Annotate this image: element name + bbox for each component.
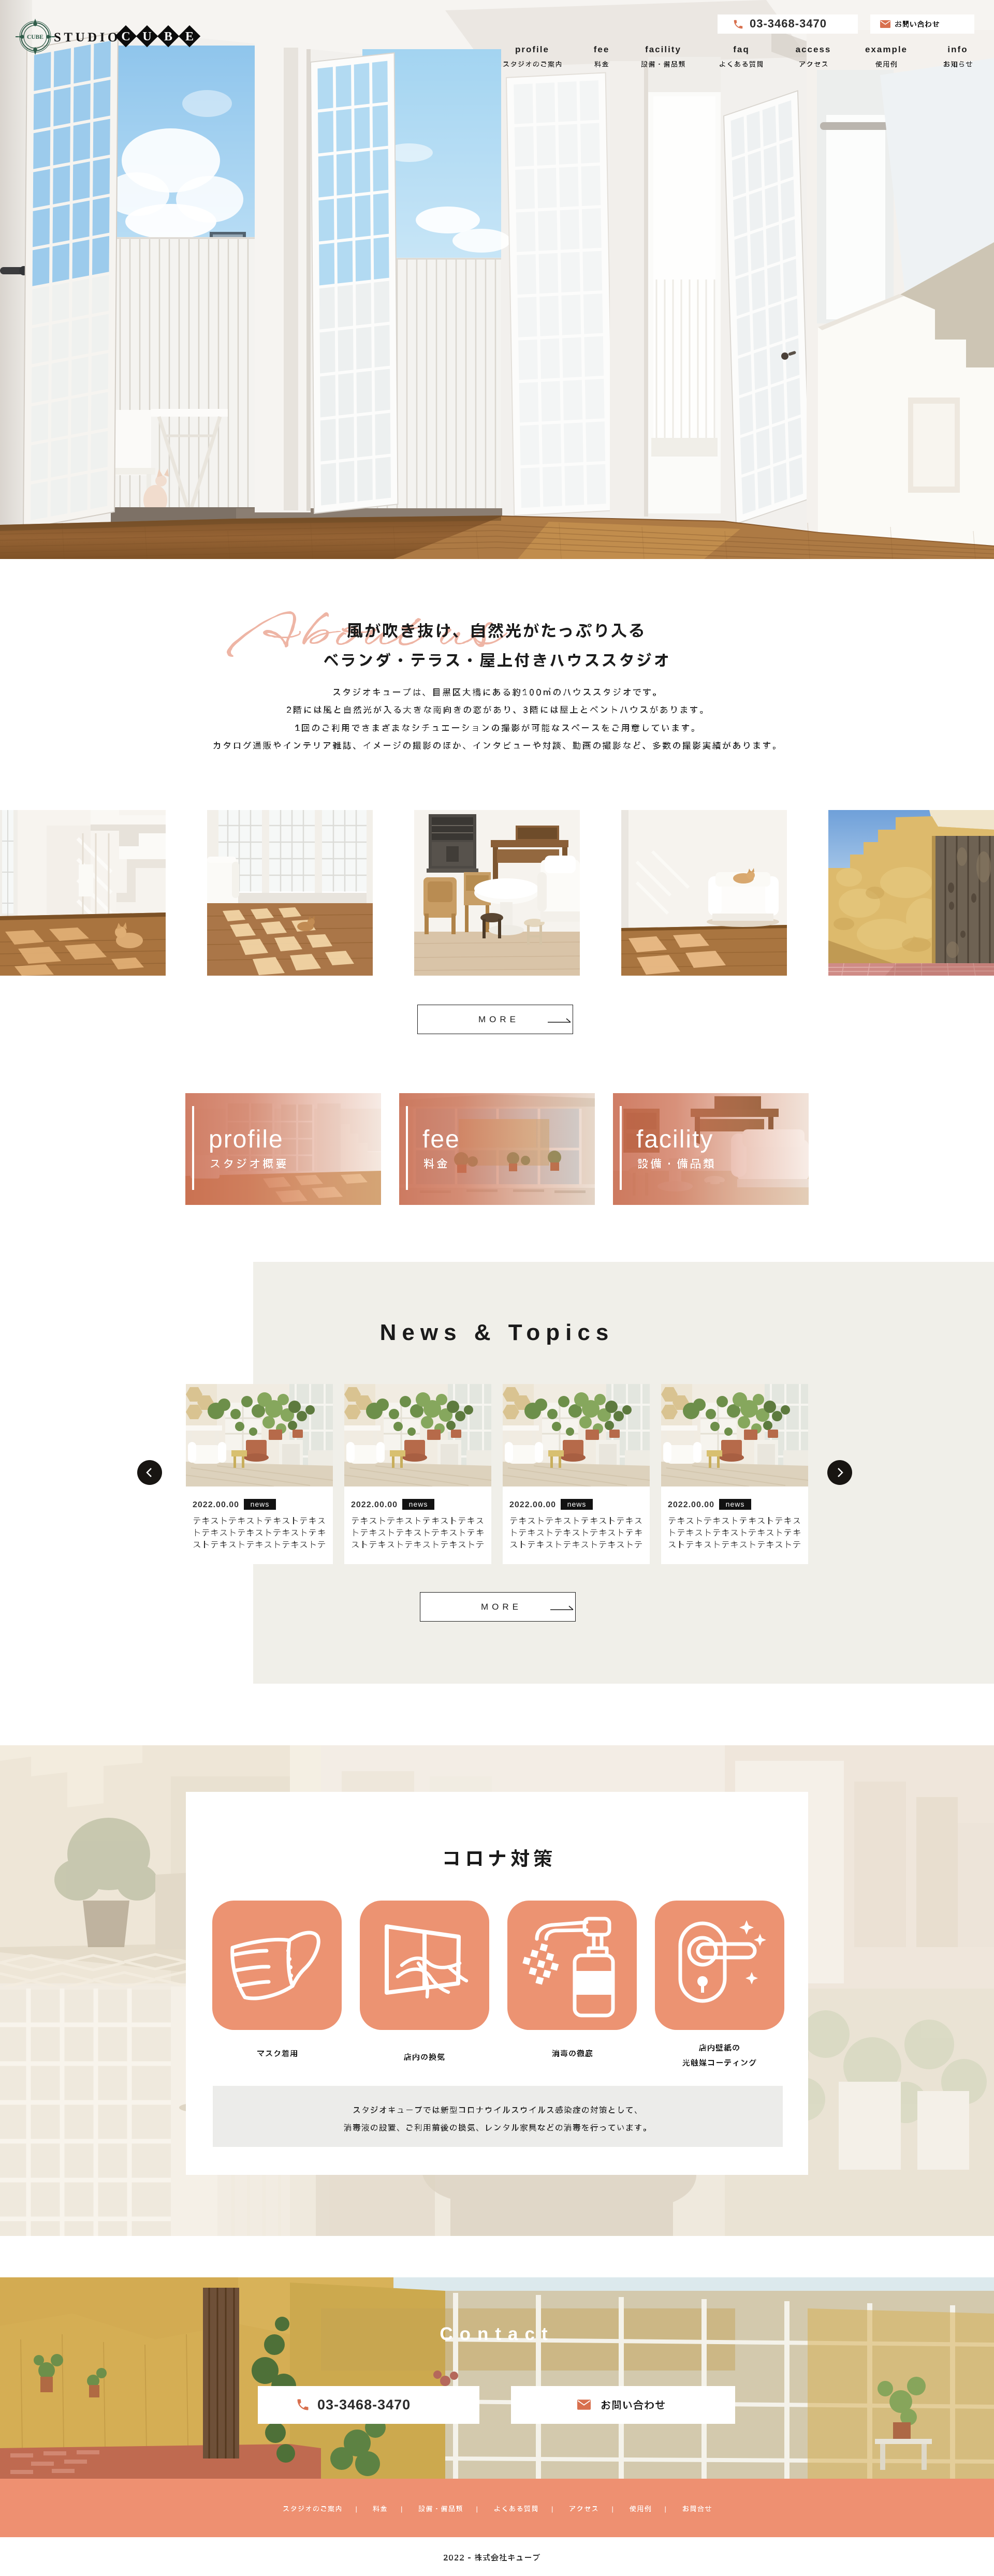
svg-text:U: U: [142, 30, 151, 43]
svg-text:STUDIO: STUDIO: [54, 31, 121, 45]
svg-text:CUBE: CUBE: [27, 34, 43, 40]
svg-text:E: E: [185, 30, 194, 43]
svg-text:B: B: [164, 30, 172, 43]
svg-text:C: C: [121, 30, 130, 43]
